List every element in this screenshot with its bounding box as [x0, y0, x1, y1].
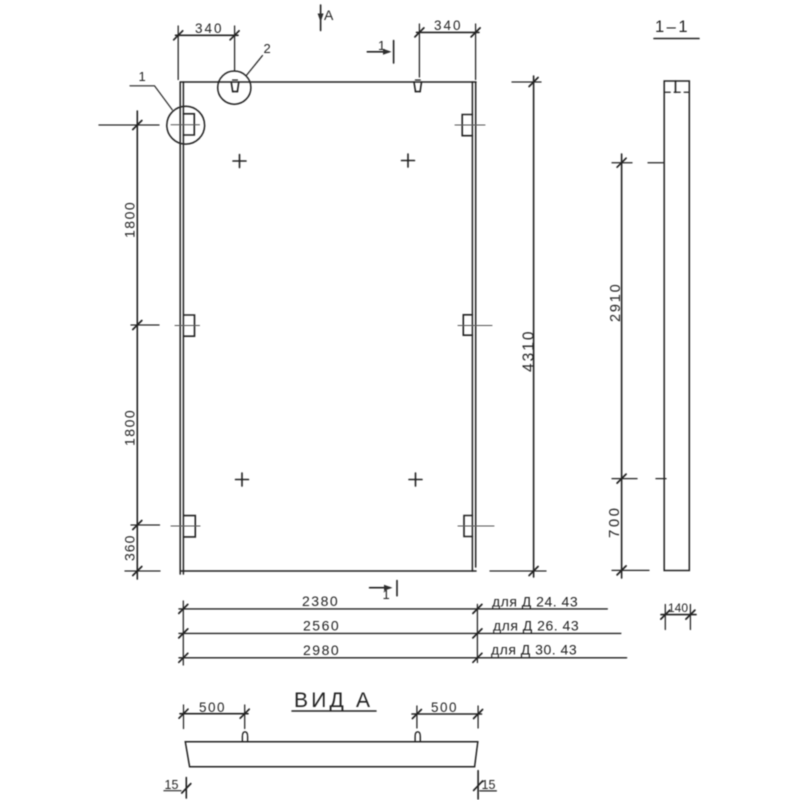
svg-text:500: 500 — [199, 700, 226, 715]
svg-text:1800: 1800 — [122, 201, 138, 238]
svg-text:340: 340 — [434, 18, 463, 33]
svg-text:1–1: 1–1 — [655, 18, 690, 36]
svg-text:2980: 2980 — [303, 642, 340, 658]
svg-text:500: 500 — [431, 700, 458, 715]
svg-text:1: 1 — [383, 587, 390, 602]
svg-text:ВИД А: ВИД А — [294, 689, 373, 712]
svg-text:140: 140 — [668, 601, 688, 615]
svg-text:700: 700 — [606, 505, 623, 538]
svg-text:для Д 24. 43: для Д 24. 43 — [492, 594, 578, 610]
svg-text:2380: 2380 — [302, 593, 339, 609]
svg-text:для Д 26. 43: для Д 26. 43 — [493, 618, 579, 634]
svg-text:15: 15 — [482, 778, 496, 792]
svg-text:1: 1 — [378, 38, 385, 53]
svg-text:для Д 30. 43: для Д 30. 43 — [491, 642, 577, 658]
svg-text:4310: 4310 — [521, 330, 538, 372]
svg-text:15: 15 — [165, 778, 179, 792]
svg-text:1800: 1800 — [122, 409, 138, 446]
svg-text:2910: 2910 — [608, 283, 624, 322]
svg-text:2: 2 — [264, 41, 271, 56]
svg-text:360: 360 — [122, 535, 138, 561]
svg-text:A: A — [324, 7, 334, 23]
svg-text:1: 1 — [139, 69, 146, 84]
svg-text:340: 340 — [195, 21, 224, 36]
svg-text:2560: 2560 — [303, 618, 340, 634]
